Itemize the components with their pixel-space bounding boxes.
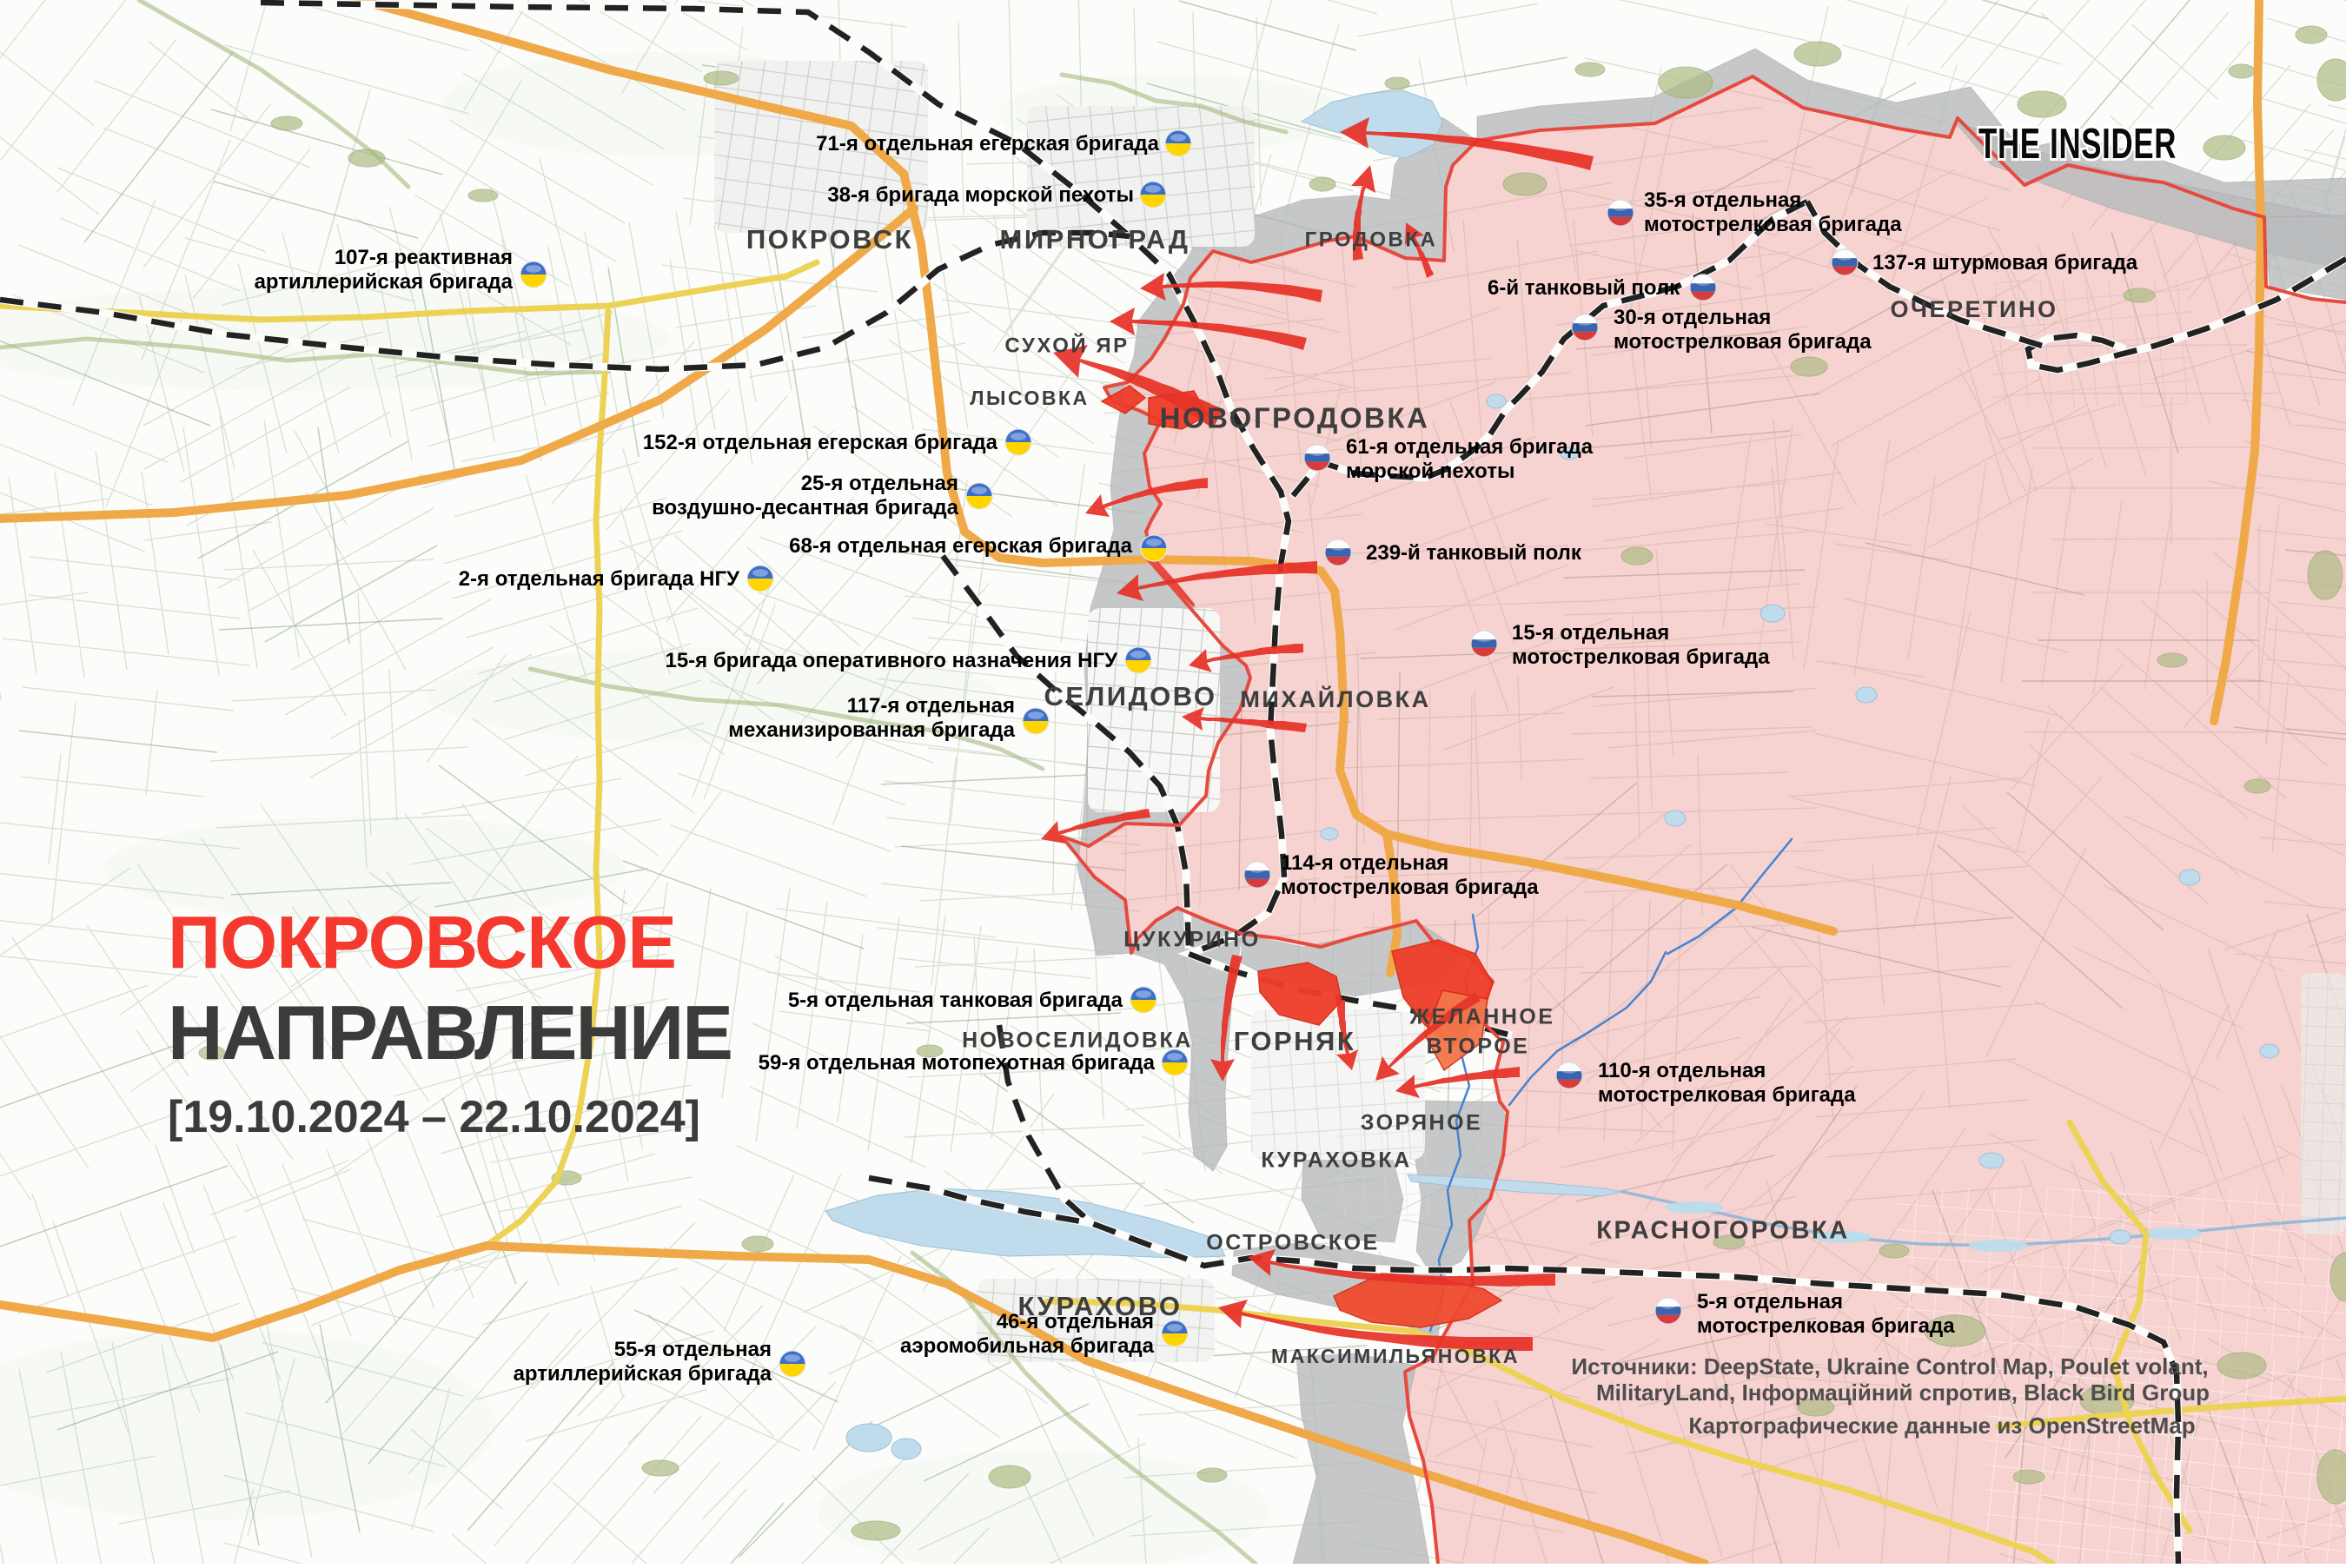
svg-text:117-я отдельная: 117-я отдельная xyxy=(847,694,1015,718)
svg-text:артиллерийская бригада: артиллерийская бригада xyxy=(255,270,514,294)
svg-text:38-я бригада морской пехоты: 38-я бригада морской пехоты xyxy=(827,183,1134,207)
svg-text:МИХАЙЛОВКА: МИХАЙЛОВКА xyxy=(1240,685,1430,712)
svg-text:мотострелковая бригада: мотострелковая бригада xyxy=(1644,213,1902,236)
svg-text:мотострелковая бригада: мотострелковая бригада xyxy=(1512,645,1770,669)
svg-text:25-я отдельная: 25-я отдельная xyxy=(801,472,958,495)
svg-text:МИРНОГРАД: МИРНОГРАД xyxy=(1000,224,1190,255)
svg-text:СЕЛИДОВО: СЕЛИДОВО xyxy=(1044,681,1216,711)
svg-text:НАПРАВЛЕНИЕ: НАПРАВЛЕНИЕ xyxy=(168,989,732,1075)
svg-text:55-я отдельная: 55-я отдельная xyxy=(614,1338,772,1361)
svg-text:Картографические данные из Ope: Картографические данные из OpenStreetMap xyxy=(1688,1413,2195,1439)
svg-text:5-я отдельная: 5-я отдельная xyxy=(1697,1290,1843,1313)
svg-text:THE INSIDER: THE INSIDER xyxy=(1978,121,2177,168)
svg-text:ЖЕЛАННОЕ: ЖЕЛАННОЕ xyxy=(1408,1005,1554,1029)
svg-text:2-я отдельная бригада НГУ: 2-я отдельная бригада НГУ xyxy=(459,567,740,591)
svg-text:ЗОРЯНОЕ: ЗОРЯНОЕ xyxy=(1361,1111,1482,1135)
svg-text:СУХОЙ ЯР: СУХОЙ ЯР xyxy=(1004,333,1129,357)
svg-text:ОЧЕРЕТИНО: ОЧЕРЕТИНО xyxy=(1891,296,2058,322)
svg-text:ЦУКУРИНО: ЦУКУРИНО xyxy=(1123,928,1260,952)
svg-text:мотострелковая бригада: мотострелковая бригада xyxy=(1614,330,1872,354)
svg-text:морской пехоты: морской пехоты xyxy=(1346,460,1514,483)
svg-text:ПОКРОВСК: ПОКРОВСК xyxy=(746,224,913,255)
svg-text:5-я отдельная танковая бригада: 5-я отдельная танковая бригада xyxy=(788,989,1123,1012)
svg-text:35-я отдельная: 35-я отдельная xyxy=(1644,189,1801,212)
svg-text:107-я реактивная: 107-я реактивная xyxy=(335,246,513,269)
svg-text:КРАСНОГОРОВКА: КРАСНОГОРОВКА xyxy=(1596,1217,1849,1245)
svg-text:15-я бригада оперативного назн: 15-я бригада оперативного назначения НГУ xyxy=(665,649,1118,672)
svg-text:ОСТРОВСКОЕ: ОСТРОВСКОЕ xyxy=(1206,1231,1379,1255)
svg-text:воздушно-десантная бригада: воздушно-десантная бригада xyxy=(652,496,959,519)
svg-text:MilitaryLand, Інформаційний сп: MilitaryLand, Інформаційний спротив, Bla… xyxy=(1596,1379,2210,1406)
svg-text:ПОКРОВСКОЕ: ПОКРОВСКОЕ xyxy=(168,902,676,984)
svg-text:Источники: DeepState, Ukraine: Источники: DeepState, Ukraine Control Ma… xyxy=(1571,1353,2208,1379)
svg-text:152-я отдельная егерская брига: 152-я отдельная егерская бригада xyxy=(643,431,998,454)
svg-text:[19.10.2024 – 22.10.2024]: [19.10.2024 – 22.10.2024] xyxy=(168,1092,700,1142)
svg-text:30-я отдельная: 30-я отдельная xyxy=(1614,306,1771,329)
svg-text:68-я отдельная егерская бригад: 68-я отдельная егерская бригада xyxy=(789,534,1133,558)
svg-text:ВТОРОЕ: ВТОРОЕ xyxy=(1427,1035,1530,1059)
svg-text:мотострелковая бригада: мотострелковая бригада xyxy=(1697,1314,1955,1338)
svg-text:61-я отдельная бригада: 61-я отдельная бригада xyxy=(1346,435,1594,459)
svg-text:механизированная бригада: механизированная бригада xyxy=(728,718,1015,742)
svg-text:15-я отдельная: 15-я отдельная xyxy=(1512,621,1669,645)
svg-text:6-й танковый полк: 6-й танковый полк xyxy=(1488,276,1680,300)
svg-text:ЛЫСОВКА: ЛЫСОВКА xyxy=(970,387,1089,409)
svg-text:мотострелковая бригада: мотострелковая бригада xyxy=(1281,876,1539,899)
svg-text:110-я отдельная: 110-я отдельная xyxy=(1598,1059,1766,1082)
svg-text:46-я отдельная: 46-я отдельная xyxy=(997,1310,1154,1333)
svg-text:артиллерийская бригада: артиллерийская бригада xyxy=(514,1362,772,1386)
svg-text:мотострелковая бригада: мотострелковая бригада xyxy=(1598,1083,1856,1107)
svg-text:МАКСИМИЛЬЯНОВКА: МАКСИМИЛЬЯНОВКА xyxy=(1271,1345,1520,1367)
svg-text:114-я отдельная: 114-я отдельная xyxy=(1281,851,1448,875)
svg-text:59-я отдельная мотопехотная бр: 59-я отдельная мотопехотная бригада xyxy=(759,1051,1156,1075)
svg-text:НОВОГРОДОВКА: НОВОГРОДОВКА xyxy=(1160,402,1430,434)
svg-text:ГОРНЯК: ГОРНЯК xyxy=(1234,1026,1356,1056)
svg-text:ГРОДОВКА: ГРОДОВКА xyxy=(1305,228,1438,251)
svg-text:НОВОСЕЛИДОВКА: НОВОСЕЛИДОВКА xyxy=(962,1029,1193,1053)
svg-text:аэромобильная бригада: аэромобильная бригада xyxy=(900,1334,1155,1358)
svg-text:71-я отдельная егерская бригад: 71-я отдельная егерская бригада xyxy=(816,132,1160,155)
svg-text:КУРАХОВКА: КУРАХОВКА xyxy=(1261,1148,1411,1173)
svg-text:137-я штурмовая бригада: 137-я штурмовая бригада xyxy=(1872,251,2138,275)
svg-text:239-й танковый полк: 239-й танковый полк xyxy=(1366,541,1582,565)
